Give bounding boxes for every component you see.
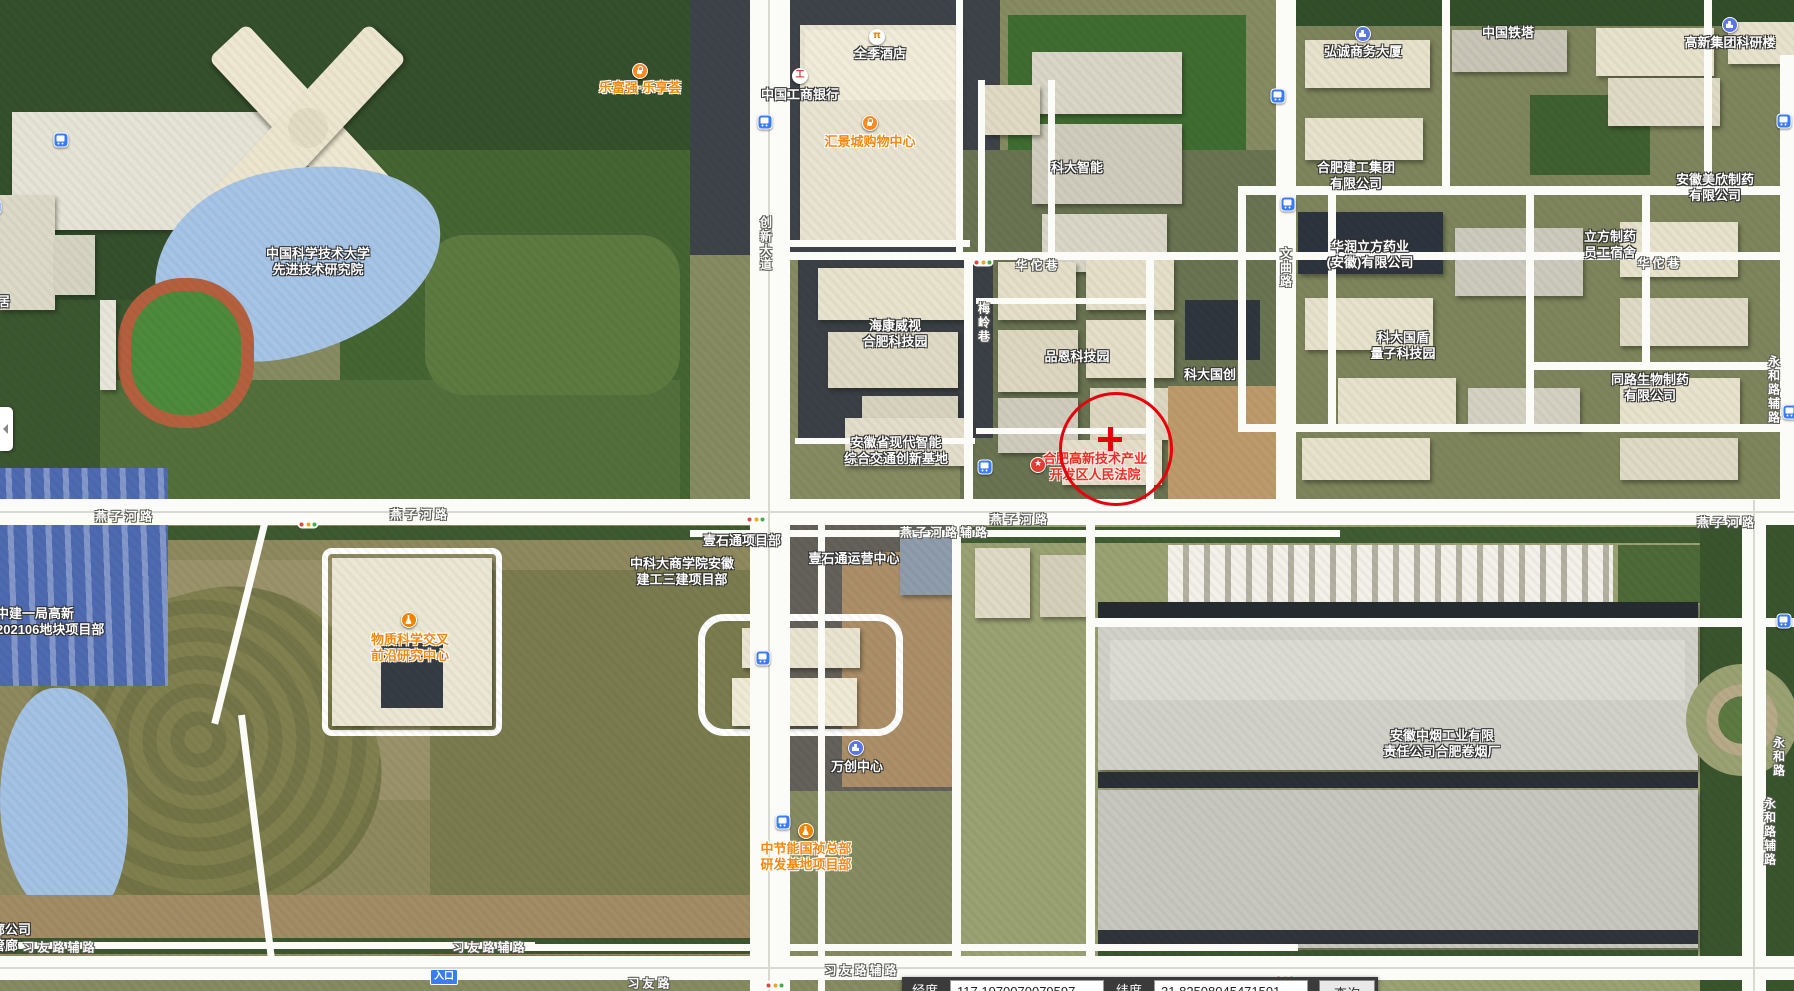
- road-label-yanzihe-rd-2: 燕子河路: [390, 506, 450, 523]
- road-label-wenqu-rd: 文曲路: [1278, 247, 1295, 289]
- poi-label-keda-guodun-quantum-park[interactable]: 科大国盾量子科技园: [1370, 330, 1435, 362]
- road-label-huatuo-lane-2: 华佗巷: [1637, 255, 1682, 272]
- bus-stop-icon[interactable]: [1271, 89, 1286, 104]
- poi-label-material-science-center[interactable]: 物质科学交叉前沿研究中心: [371, 632, 449, 664]
- building: [1338, 378, 1456, 426]
- bus-stop-icon[interactable]: [978, 460, 993, 475]
- terrain-patch: [1098, 772, 1698, 788]
- bus-stop-icon[interactable]: [758, 115, 773, 130]
- court-star-icon[interactable]: [1030, 457, 1046, 473]
- bus-stop-icon[interactable]: [1783, 405, 1794, 420]
- hotel-icon-quanji[interactable]: [869, 29, 885, 45]
- building: [288, 108, 328, 148]
- traffic-light-icon: [746, 515, 767, 524]
- poi-label-keda-zhineng[interactable]: 科大智能: [1051, 160, 1103, 176]
- building: [975, 548, 1030, 618]
- shopping-icon-mall[interactable]: [862, 115, 878, 131]
- building: [1185, 300, 1260, 360]
- building: [985, 85, 1040, 135]
- road-label-xiyou-rd-1: 习友路: [627, 975, 672, 991]
- poi-label-yishitong-ops-center[interactable]: 壹石通运营中心: [808, 551, 899, 567]
- road-label-xiyou-service-rd-2: 习友路辅路: [452, 939, 527, 956]
- latitude-value[interactable]: 31.82508045471501: [1154, 980, 1308, 991]
- road-median: [0, 511, 1794, 513]
- traffic-light-icon: [765, 981, 786, 990]
- road-label-yonghe-service-rd-2: 永和路辅路: [1762, 797, 1779, 867]
- poi-label-pinen-tech-park[interactable]: 品恩科技园: [1044, 349, 1109, 365]
- road-ne-grid-v3: [1642, 186, 1650, 370]
- bank-icon-icbc[interactable]: [792, 68, 808, 84]
- road-median: [1753, 500, 1755, 991]
- road-ne-grid-v6: [1238, 186, 1246, 432]
- poi-label-anhui-smart-transport-base[interactable]: 安徽省现代智能综合交通创新基地: [844, 435, 948, 467]
- poi-label-wanchuang-center[interactable]: 万创中心: [831, 759, 883, 775]
- poi-label-icbc-bank[interactable]: 中国工商银行: [761, 87, 839, 103]
- road-v-960: [952, 525, 961, 991]
- bus-stop-icon[interactable]: [776, 815, 791, 830]
- coordinate-bar: 经度 117.1970070079597 纬度 31.8250804547150…: [902, 977, 1378, 991]
- road-ne-grid-v1: [1328, 186, 1336, 432]
- latitude-label: 纬度: [1109, 980, 1149, 991]
- road-label-yonghe-service-rd-1: 永和路辅路: [1766, 355, 1783, 425]
- road-mall-south: [770, 240, 970, 247]
- road-label-xiyou-service-rd-1: 习友路辅路: [22, 939, 97, 956]
- traffic-light-icon: [298, 520, 319, 529]
- road-block-v2: [978, 80, 985, 254]
- poi-label-china-tower[interactable]: 中国铁塔: [1482, 25, 1534, 41]
- cigarette-factory-building: [1098, 790, 1698, 948]
- road-ne-grid-v5: [1442, 0, 1450, 192]
- poi-label-zhongjian-project-dept[interactable]: 中建一局高新202106地块项目部: [0, 606, 104, 638]
- building: [0, 195, 55, 310]
- building: [100, 300, 116, 390]
- sidebar-collapse-button[interactable]: [0, 407, 13, 451]
- building: [1040, 555, 1090, 617]
- road-label-meiling-lane: 梅岭巷: [976, 302, 993, 344]
- building: [1305, 118, 1423, 160]
- search-button[interactable]: 查询: [1319, 980, 1375, 991]
- poi-label-hikvision-hefei-park[interactable]: 海康威视合肥科技园: [862, 318, 927, 350]
- road-label-yanzihe-rd-3: 燕子河路: [990, 511, 1050, 528]
- road-meiling-lane: [964, 252, 973, 508]
- entrance-badge: 入口: [430, 969, 458, 985]
- roof-edge: [1098, 930, 1698, 944]
- poi-label-keda-guochuang[interactable]: 科大国创: [1184, 367, 1236, 383]
- road-factory-north: [1088, 618, 1794, 627]
- building: [55, 235, 95, 295]
- roof-detail: [1110, 640, 1685, 700]
- poi-label-anhui-meixin-pharma[interactable]: 安徽美欣制药有限公司: [1676, 172, 1754, 204]
- poi-label-anhui-tobacco-factory[interactable]: 安徽中烟工业有限责任公司合肥卷烟厂: [1383, 728, 1500, 760]
- project-icon-material-center[interactable]: [401, 612, 417, 628]
- bus-stop-icon[interactable]: [1281, 197, 1296, 212]
- road-label-yanzihe-service-rd: 燕子河路辅路: [900, 524, 990, 541]
- poi-label-tonglu-bio-pharma[interactable]: 同路生物制药有限公司: [1611, 372, 1689, 404]
- building-icon-wanchuang[interactable]: [848, 740, 864, 756]
- poi-label-quanji-hotel[interactable]: 全季酒店: [854, 46, 906, 62]
- road-xiyou-service-mid: [498, 944, 1298, 951]
- poi-label-partial-langongsi[interactable]: 廊公司管廊: [0, 922, 31, 954]
- poi-label-huarun-lifang-pharma[interactable]: 华润立方药业(安徽)有限公司: [1327, 239, 1414, 271]
- longitude-label: 经度: [905, 980, 945, 991]
- building: [1620, 438, 1738, 480]
- stadium-running-track: [118, 278, 254, 428]
- road-pinen-h1: [976, 298, 1151, 304]
- poi-label-ustc-advanced-tech-institute[interactable]: 中国科学技术大学先进技术研究院: [266, 246, 370, 278]
- chevron-left-icon: [3, 424, 8, 434]
- road-label-yanzihe-rd-1: 燕子河路: [95, 508, 155, 525]
- building: [1302, 438, 1430, 480]
- road-ne-grid-h2: [1528, 362, 1794, 370]
- building: [818, 268, 968, 320]
- road-mall-east: [956, 0, 963, 252]
- bus-stop-icon[interactable]: [54, 133, 69, 148]
- poi-label-zhongjieneng-guozhen-hq[interactable]: 中节能国祯总部研发基地项目部: [760, 841, 851, 873]
- road-label-yonghe-rd: 永和路: [1771, 736, 1788, 778]
- poi-label-lefuqiang-lexianghui[interactable]: 乐富强·乐享荟: [599, 80, 681, 96]
- poi-label-partial-ju[interactable]: 居: [0, 294, 10, 310]
- warehouse-rows: [1168, 545, 1613, 603]
- poi-label-zhongkeda-business-school-dept[interactable]: 中科大商学院安徽建工三建项目部: [630, 556, 734, 588]
- building: [1455, 228, 1583, 296]
- road-v-820: [818, 525, 825, 991]
- road-label-yanzihe-rd-4: 燕子河路: [1697, 514, 1757, 531]
- bus-stop-icon[interactable]: [1777, 114, 1792, 129]
- road-label-huatuo-lane-1: 华佗巷: [1015, 257, 1060, 274]
- road-label-chuangxin-ave: 创新大道: [758, 216, 775, 272]
- road-ne-grid-h3: [1238, 424, 1794, 432]
- roof-edge: [1098, 602, 1698, 618]
- road-ne-grid-v2: [1526, 186, 1534, 432]
- road-factory-west: [1086, 525, 1095, 991]
- poi-label-huijingcheng-mall[interactable]: 汇景城购物中心: [824, 134, 915, 150]
- road-label-xiyou-service-rd-3: 习友路辅路: [824, 962, 899, 979]
- building-icon-gaoxin[interactable]: [1722, 17, 1738, 33]
- poi-label-hefei-construction-group[interactable]: 合肥建工集团有限公司: [1317, 160, 1395, 192]
- target-circle-annotation: [1059, 392, 1173, 506]
- poi-label-hongcheng-business-tower[interactable]: 弘诚商务大厦: [1324, 44, 1402, 60]
- bus-stop-icon[interactable]: [756, 651, 771, 666]
- poi-label-lifang-pharma-dorm[interactable]: 立方制药员工宿舍: [1584, 229, 1636, 261]
- shopping-icon-lefuqiang[interactable]: [632, 63, 648, 79]
- tree-line: [1280, 0, 1794, 26]
- project-icon-zhongjieneng[interactable]: [798, 823, 814, 839]
- building-icon-hongcheng[interactable]: [1355, 26, 1371, 42]
- bus-stop-icon[interactable]: [1777, 614, 1792, 629]
- poi-label-yishitong-project-dept[interactable]: 壹石通项目部: [703, 533, 781, 549]
- building: [1620, 298, 1748, 346]
- building: [900, 535, 952, 595]
- green-field: [1618, 545, 1703, 603]
- road-ne-grid-v4: [1704, 0, 1712, 192]
- satellite-map[interactable]: 中国科学技术大学先进技术研究院乐富强·乐享荟全季酒店中国工商银行汇景城购物中心科…: [0, 0, 1794, 991]
- target-crosshair: [1108, 427, 1113, 451]
- traffic-light-icon: [973, 258, 994, 267]
- terrain-patch: [425, 235, 680, 395]
- longitude-value[interactable]: 117.1970070079597: [950, 980, 1104, 991]
- poi-label-gaoxin-group-research-building[interactable]: 高新集团科研楼: [1684, 35, 1775, 51]
